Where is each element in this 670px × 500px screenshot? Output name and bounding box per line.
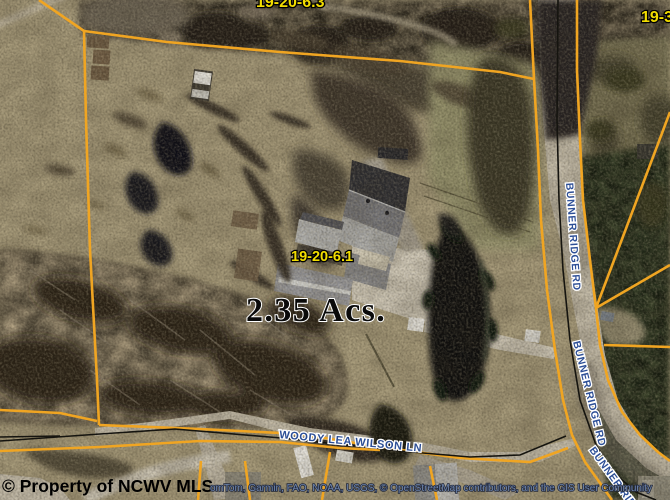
svg-text:19-20-6.1: 19-20-6.1 <box>291 249 353 265</box>
svg-text:© Property of NCWV MLS: © Property of NCWV MLS <box>2 476 213 496</box>
svg-text:19-20-6.3: 19-20-6.3 <box>256 0 325 11</box>
svg-text:omTom, Garmin, FAO, NOAA, USGS: omTom, Garmin, FAO, NOAA, USGS, © OpenSt… <box>210 483 652 494</box>
svg-text:19-32: 19-32 <box>641 9 670 26</box>
svg-text:2.35 Acs.: 2.35 Acs. <box>246 292 386 329</box>
